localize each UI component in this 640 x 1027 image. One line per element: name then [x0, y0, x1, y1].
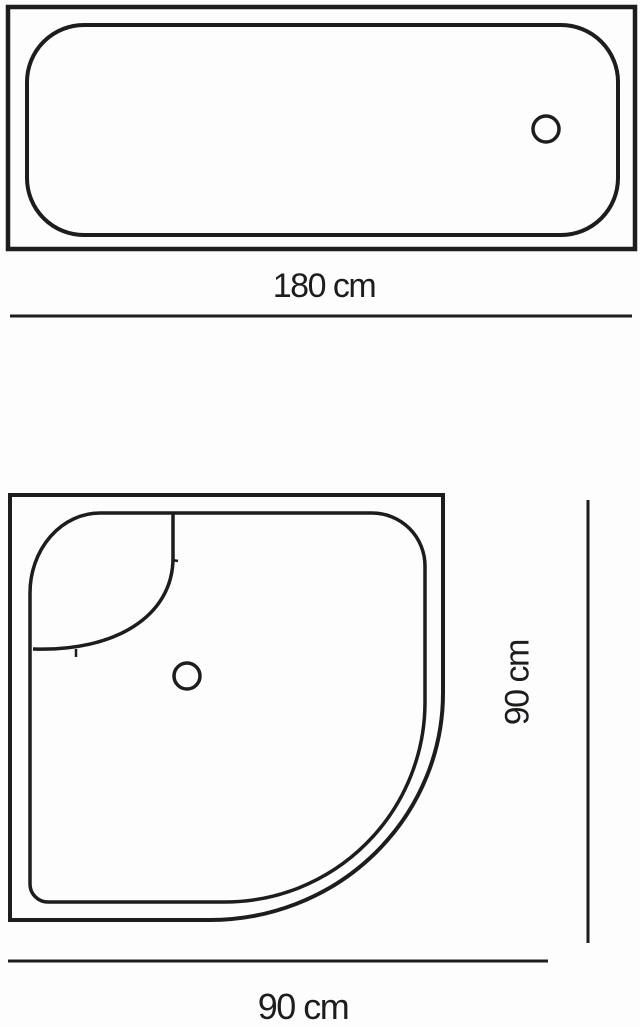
- dimension-drawing: 180 cm 90 cm 90 cm: [0, 0, 640, 1024]
- tray-rim: [30, 513, 425, 902]
- bathtub-outer-edge: [8, 7, 635, 249]
- bathtub-width-label: 180 cm: [244, 268, 404, 305]
- bathtub-rim: [27, 25, 618, 235]
- tray-height-label: 90 cm: [499, 603, 536, 763]
- tray-outer-edge: [10, 495, 443, 920]
- tray-width-label: 90 cm: [223, 987, 383, 1027]
- drawing-canvas: [0, 0, 640, 1024]
- tray-drain: [174, 663, 200, 689]
- tray-seat-tick-top: [172, 560, 178, 561]
- bathtub-drain: [533, 116, 559, 142]
